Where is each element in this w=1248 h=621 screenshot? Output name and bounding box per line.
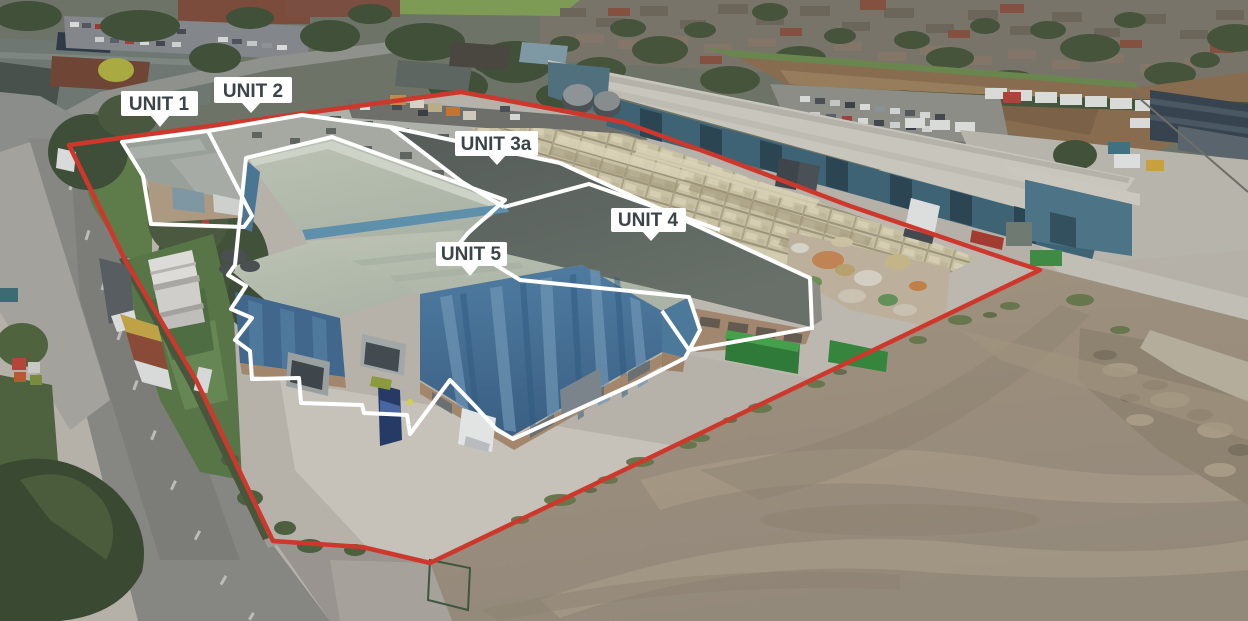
svg-text:UNIT 2: UNIT 2: [223, 81, 283, 102]
svg-text:UNIT 1: UNIT 1: [129, 94, 190, 115]
svg-text:UNIT 4: UNIT 4: [618, 210, 679, 231]
svg-text:UNIT 3a: UNIT 3a: [461, 134, 532, 155]
svg-text:UNIT 5: UNIT 5: [441, 244, 502, 265]
